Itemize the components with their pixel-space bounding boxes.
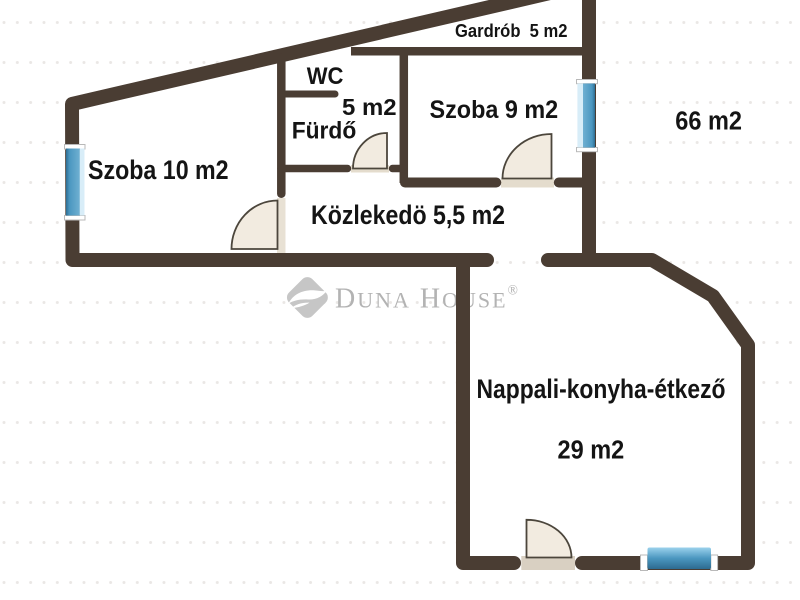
svg-text:Fürdő: Fürdő	[292, 118, 357, 145]
svg-text:5 m2: 5 m2	[342, 94, 397, 120]
svg-text:Közlekedö 5,5 m2: Közlekedö 5,5 m2	[311, 200, 505, 230]
svg-text:WC: WC	[307, 63, 344, 90]
svg-text:66 m2: 66 m2	[675, 105, 742, 135]
svg-text:Nappali-konyha-étkező: Nappali-konyha-étkező	[477, 374, 726, 404]
svg-text:Szoba 9 m2: Szoba 9 m2	[430, 96, 559, 124]
svg-text:DUNA HOUSE®: DUNA HOUSE®	[335, 283, 520, 315]
svg-text:29 m2: 29 m2	[558, 434, 625, 464]
svg-text:Szoba 10 m2: Szoba 10 m2	[88, 155, 229, 185]
svg-text:Gardrób 5 m2: Gardrób 5 m2	[455, 21, 568, 41]
